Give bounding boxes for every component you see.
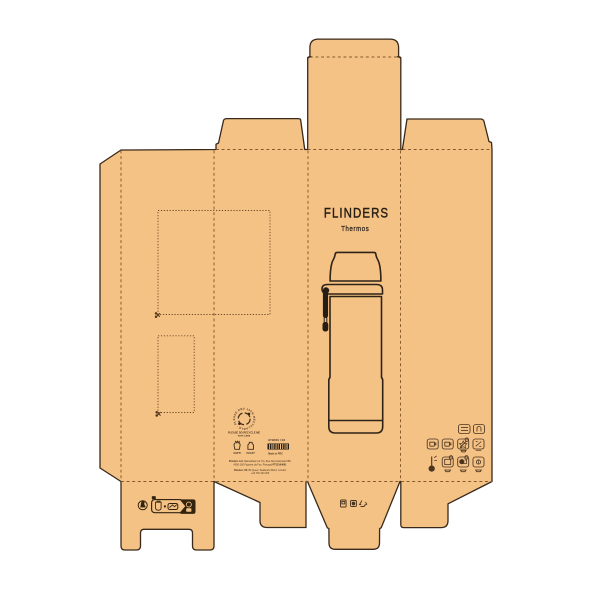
svg-text:4000-160 Figueira da Foz, Port: 4000-160 Figueira da Foz, Portugal PT531… xyxy=(234,463,288,466)
svg-text:+44 745 103 203: +44 745 103 203 xyxy=(251,472,270,475)
svg-text:ΧΑΡΤΙ: ΧΑΡΤΙ xyxy=(233,452,241,455)
svg-text:ATH001 / 03: ATH001 / 03 xyxy=(268,438,285,442)
svg-text:ΠΛΑΣΤ: ΠΛΑΣΤ xyxy=(246,452,255,455)
svg-text:Made in PRC: Made in PRC xyxy=(268,452,283,455)
svg-text:WITH CARE: WITH CARE xyxy=(238,434,251,437)
svg-text:PLEASE DO RECYCLE ME: PLEASE DO RECYCLE ME xyxy=(228,430,260,434)
svg-text:Thermos: Thermos xyxy=(341,225,369,232)
svg-text:FLINDERS: FLINDERS xyxy=(324,204,389,220)
